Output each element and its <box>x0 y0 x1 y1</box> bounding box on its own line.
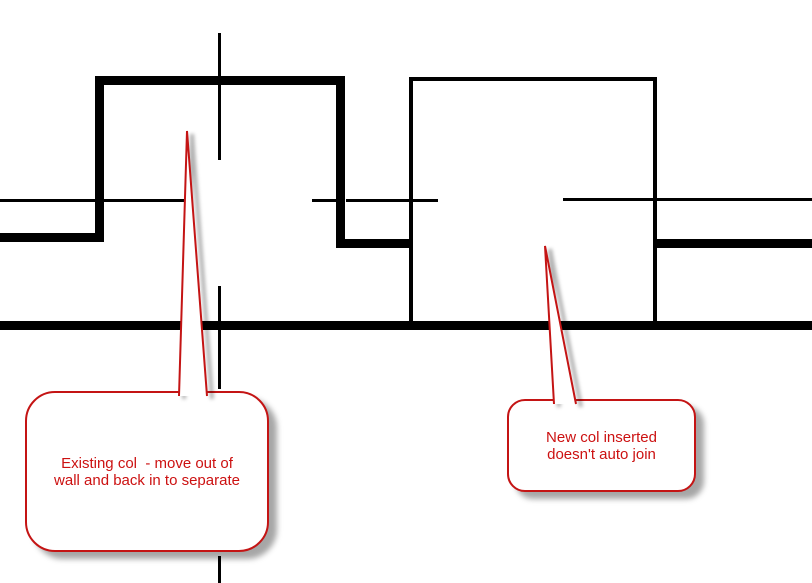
new-col-left-edge[interactable] <box>409 77 413 325</box>
wall-bottom-edge-right[interactable] <box>653 239 812 248</box>
wall-bottom-edge-left[interactable] <box>0 233 100 242</box>
wall-top-edge-right[interactable] <box>563 198 812 201</box>
wall-top-edge-tick[interactable] <box>312 199 337 202</box>
new-col-top-edge[interactable] <box>409 77 657 81</box>
new-col-right-edge[interactable] <box>653 77 657 325</box>
callout-existing-col[interactable]: Existing col - move out of wall and back… <box>25 391 269 552</box>
callout-new-col-text-line-2: doesn't auto join <box>547 446 656 463</box>
column-centerline-lower[interactable] <box>218 556 221 583</box>
callout-existing-col-text-line-1: Existing col - move out of <box>61 455 233 472</box>
existing-col-right-edge[interactable] <box>336 76 345 248</box>
existing-col-left-edge[interactable] <box>95 76 104 242</box>
wall-top-edge-inside-existing-col[interactable] <box>104 199 186 202</box>
cad-drawing-canvas[interactable]: Existing col - move out of wall and back… <box>0 0 812 583</box>
callout-new-col-text-line-1: New col inserted <box>546 429 657 446</box>
wall-top-edge-mid[interactable] <box>346 199 438 202</box>
callout-existing-col-tail <box>179 131 207 396</box>
callout-new-col[interactable]: New col inserted doesn't auto join <box>507 399 696 492</box>
column-centerline-upper[interactable] <box>218 33 221 160</box>
callout-existing-col-tail-shadow <box>184 134 212 399</box>
lower-wall-edge[interactable] <box>0 321 812 330</box>
wall-bottom-edge-mid[interactable] <box>337 239 411 248</box>
column-centerline-middle[interactable] <box>218 286 221 389</box>
wall-top-edge-left[interactable] <box>0 199 95 202</box>
callout-existing-col-text-line-2: wall and back in to separate <box>54 472 240 489</box>
